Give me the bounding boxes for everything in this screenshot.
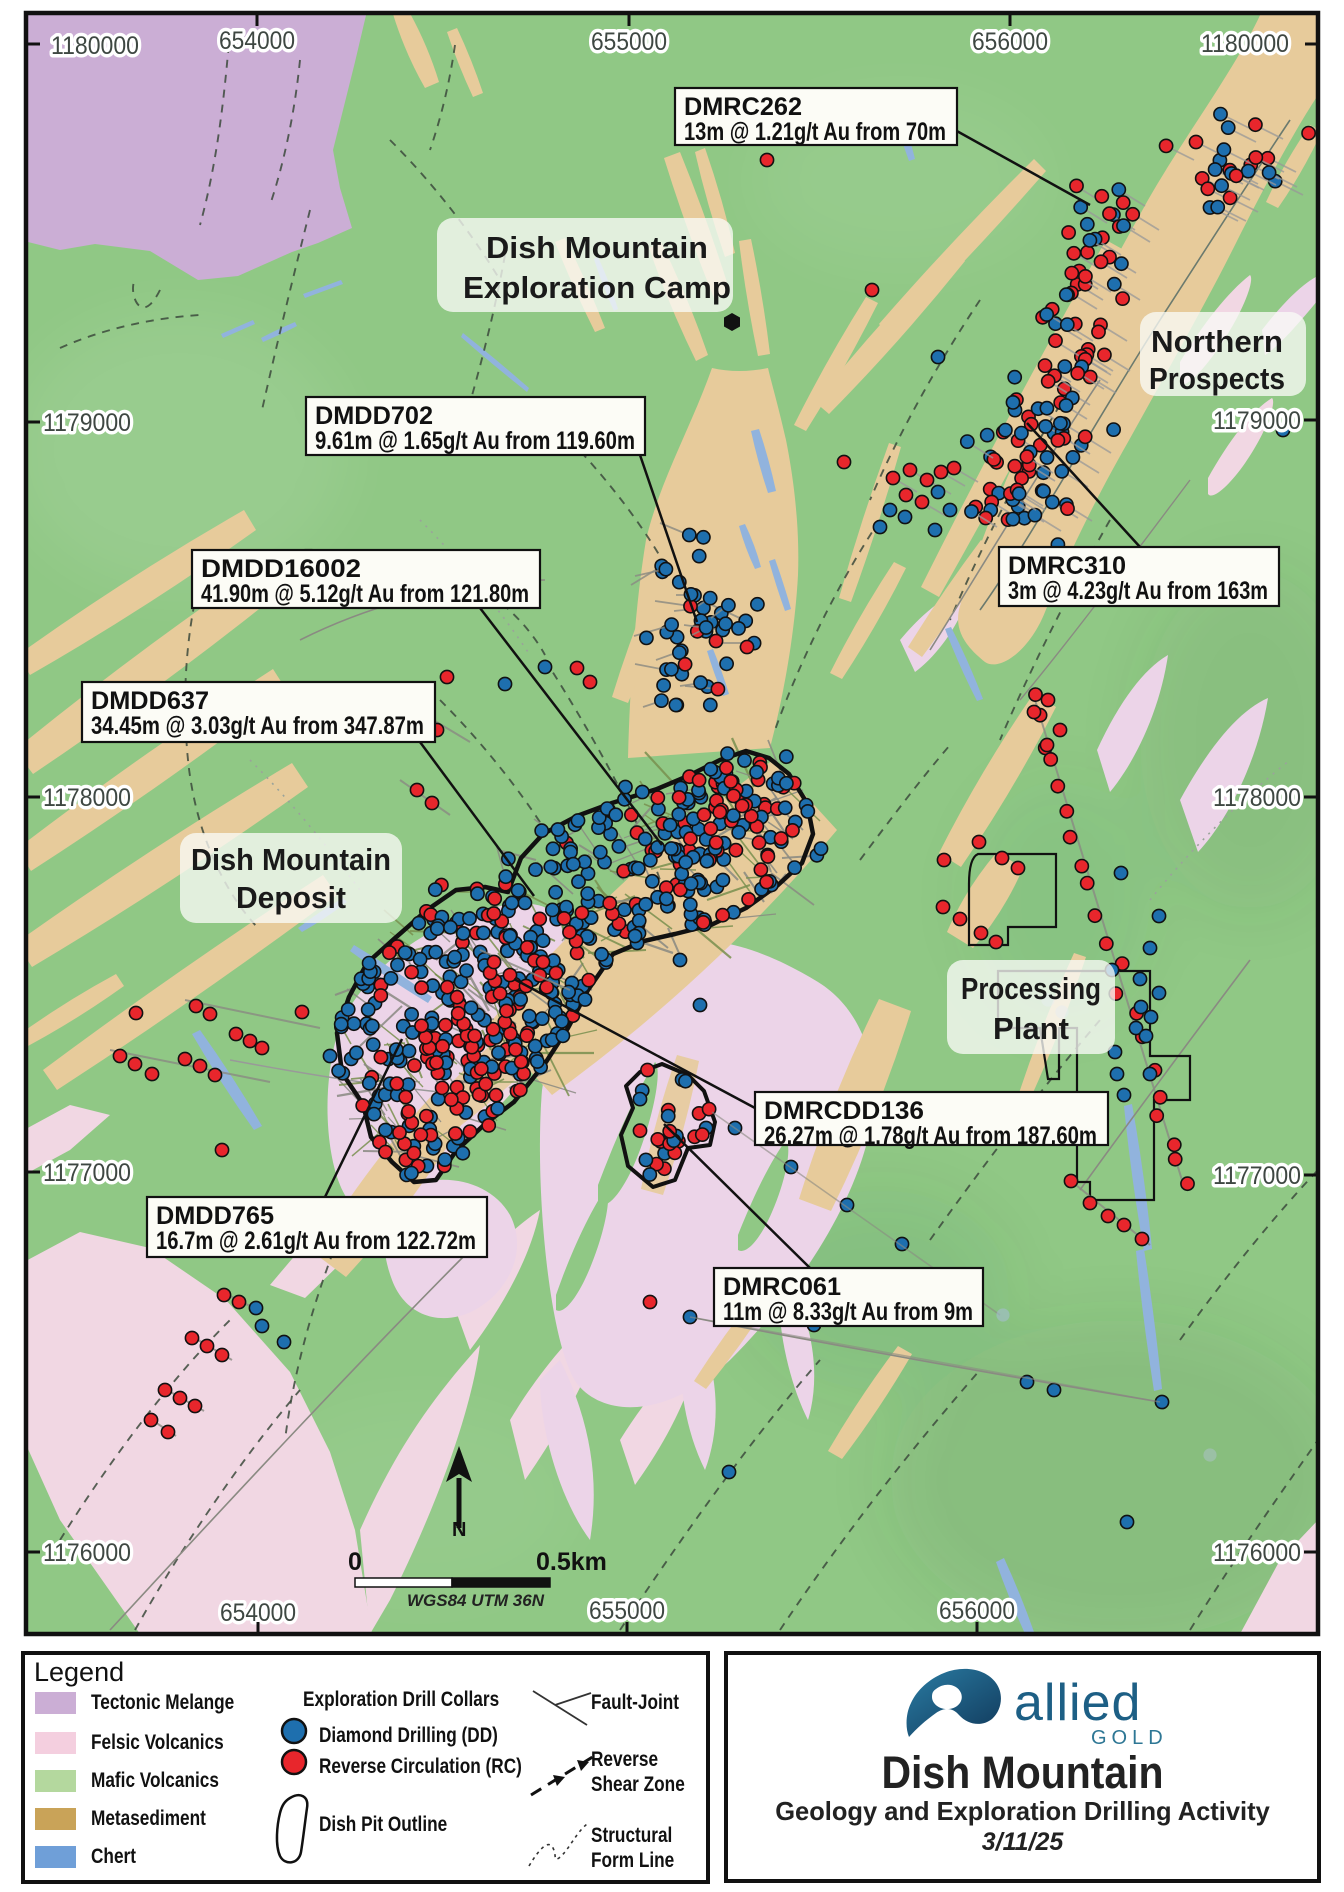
svg-text:13m @ 1.21g/t Au from 70m: 13m @ 1.21g/t Au from 70m bbox=[684, 118, 946, 146]
svg-text:9.61m @ 1.65g/t Au from 119.60: 9.61m @ 1.65g/t Au from 119.60m bbox=[315, 427, 635, 455]
svg-text:0: 0 bbox=[348, 1548, 362, 1576]
svg-text:Dish Mountain: Dish Mountain bbox=[486, 230, 708, 265]
svg-text:DMRC310: DMRC310 bbox=[1008, 552, 1126, 580]
svg-text:1176000: 1176000 bbox=[43, 1539, 131, 1567]
svg-text:656000: 656000 bbox=[972, 28, 1048, 56]
svg-text:655000: 655000 bbox=[589, 1597, 665, 1625]
svg-text:Northern: Northern bbox=[1151, 324, 1283, 359]
svg-text:1180000: 1180000 bbox=[51, 32, 139, 60]
svg-text:Deposit: Deposit bbox=[236, 880, 346, 915]
svg-text:Prospects: Prospects bbox=[1149, 361, 1285, 396]
svg-text:1179000: 1179000 bbox=[43, 409, 131, 437]
svg-text:655000: 655000 bbox=[591, 28, 667, 56]
svg-text:1177000: 1177000 bbox=[1213, 1162, 1301, 1190]
svg-text:1180000: 1180000 bbox=[1201, 30, 1289, 58]
svg-text:1177000: 1177000 bbox=[43, 1159, 131, 1187]
svg-text:11m @ 8.33g/t Au from 9m: 11m @ 8.33g/t Au from 9m bbox=[723, 1298, 973, 1326]
svg-text:Plant: Plant bbox=[993, 1011, 1069, 1046]
svg-text:41.90m @ 5.12g/t Au from 121.8: 41.90m @ 5.12g/t Au from 121.80m bbox=[201, 580, 529, 608]
svg-text:WGS84 UTM 36N: WGS84 UTM 36N bbox=[407, 1591, 545, 1610]
svg-text:654000: 654000 bbox=[219, 27, 295, 55]
svg-text:26.27m @ 1.78g/t Au from 187.6: 26.27m @ 1.78g/t Au from 187.60m bbox=[764, 1122, 1097, 1150]
svg-text:N: N bbox=[452, 1519, 466, 1541]
svg-text:0.5km: 0.5km bbox=[536, 1548, 607, 1576]
svg-text:DMDD637: DMDD637 bbox=[91, 687, 209, 715]
svg-text:DMRC061: DMRC061 bbox=[723, 1273, 841, 1301]
svg-text:1179000: 1179000 bbox=[1213, 407, 1301, 435]
svg-text:34.45m @ 3.03g/t Au from 347.8: 34.45m @ 3.03g/t Au from 347.87m bbox=[91, 712, 424, 740]
svg-text:3m @ 4.23g/t Au from 163m: 3m @ 4.23g/t Au from 163m bbox=[1008, 577, 1268, 605]
svg-text:DMRC262: DMRC262 bbox=[684, 93, 802, 121]
svg-text:Processing: Processing bbox=[961, 971, 1101, 1006]
svg-text:Dish Mountain: Dish Mountain bbox=[191, 842, 391, 877]
svg-text:DMDD702: DMDD702 bbox=[315, 402, 433, 430]
svg-text:DMDD765: DMDD765 bbox=[156, 1202, 274, 1230]
svg-text:1176000: 1176000 bbox=[1213, 1539, 1301, 1567]
svg-text:1178000: 1178000 bbox=[1213, 784, 1301, 812]
svg-text:656000: 656000 bbox=[939, 1597, 1015, 1625]
svg-text:Exploration Camp: Exploration Camp bbox=[463, 270, 731, 305]
svg-text:16.7m @ 2.61g/t Au from 122.72: 16.7m @ 2.61g/t Au from 122.72m bbox=[156, 1227, 476, 1255]
svg-text:1178000: 1178000 bbox=[43, 784, 131, 812]
svg-text:DMDD16002: DMDD16002 bbox=[201, 555, 361, 583]
svg-text:DMRCDD136: DMRCDD136 bbox=[764, 1097, 924, 1125]
